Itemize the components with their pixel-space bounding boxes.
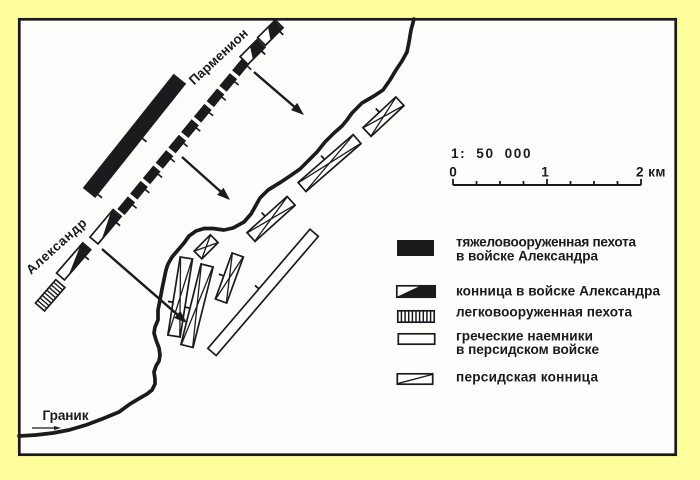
svg-text:0: 0	[449, 165, 457, 180]
svg-text:тяжеловооруженная пехота: тяжеловооруженная пехота	[456, 235, 636, 250]
svg-text:персидская конница: персидская конница	[456, 370, 598, 385]
svg-text:Граник: Граник	[43, 408, 89, 423]
svg-text:в персидском войске: в персидском войске	[456, 342, 599, 357]
svg-text:1: 1	[541, 165, 549, 180]
svg-text:2 км: 2 км	[636, 165, 666, 180]
svg-text:в войске Александра: в войске Александра	[456, 249, 598, 264]
svg-text:конница в войске Александра: конница в войске Александра	[456, 284, 660, 299]
svg-text:легковооруженная пехота: легковооруженная пехота	[456, 305, 632, 320]
svg-text:1:50000: 1:50000	[451, 146, 532, 161]
